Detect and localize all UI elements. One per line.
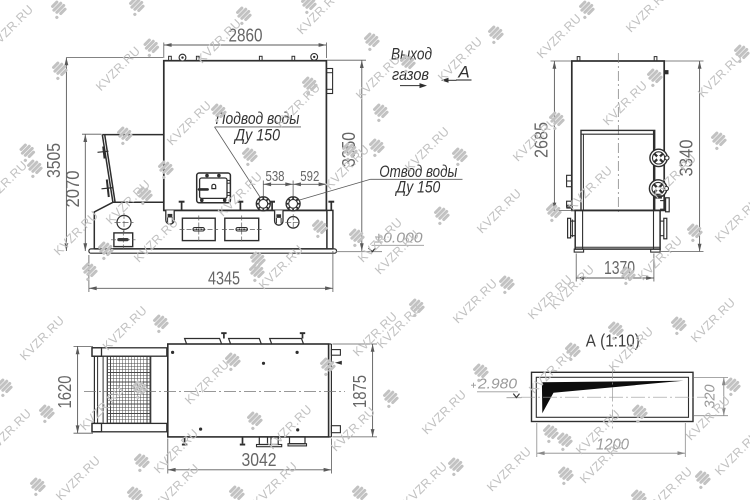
svg-text:1875: 1875 [350,375,370,408]
svg-text:538: 538 [266,168,285,185]
svg-text:2.980: 2.980 [477,376,518,393]
svg-text:3042: 3042 [242,450,277,470]
svg-text:2070: 2070 [63,171,83,208]
svg-text:592: 592 [300,168,319,185]
svg-text:3505: 3505 [44,143,64,178]
svg-text:1620: 1620 [55,376,75,409]
svg-text:Ду 150: Ду 150 [395,178,441,197]
svg-text:4345: 4345 [208,269,240,289]
svg-text:Ду 150: Ду 150 [233,126,280,145]
